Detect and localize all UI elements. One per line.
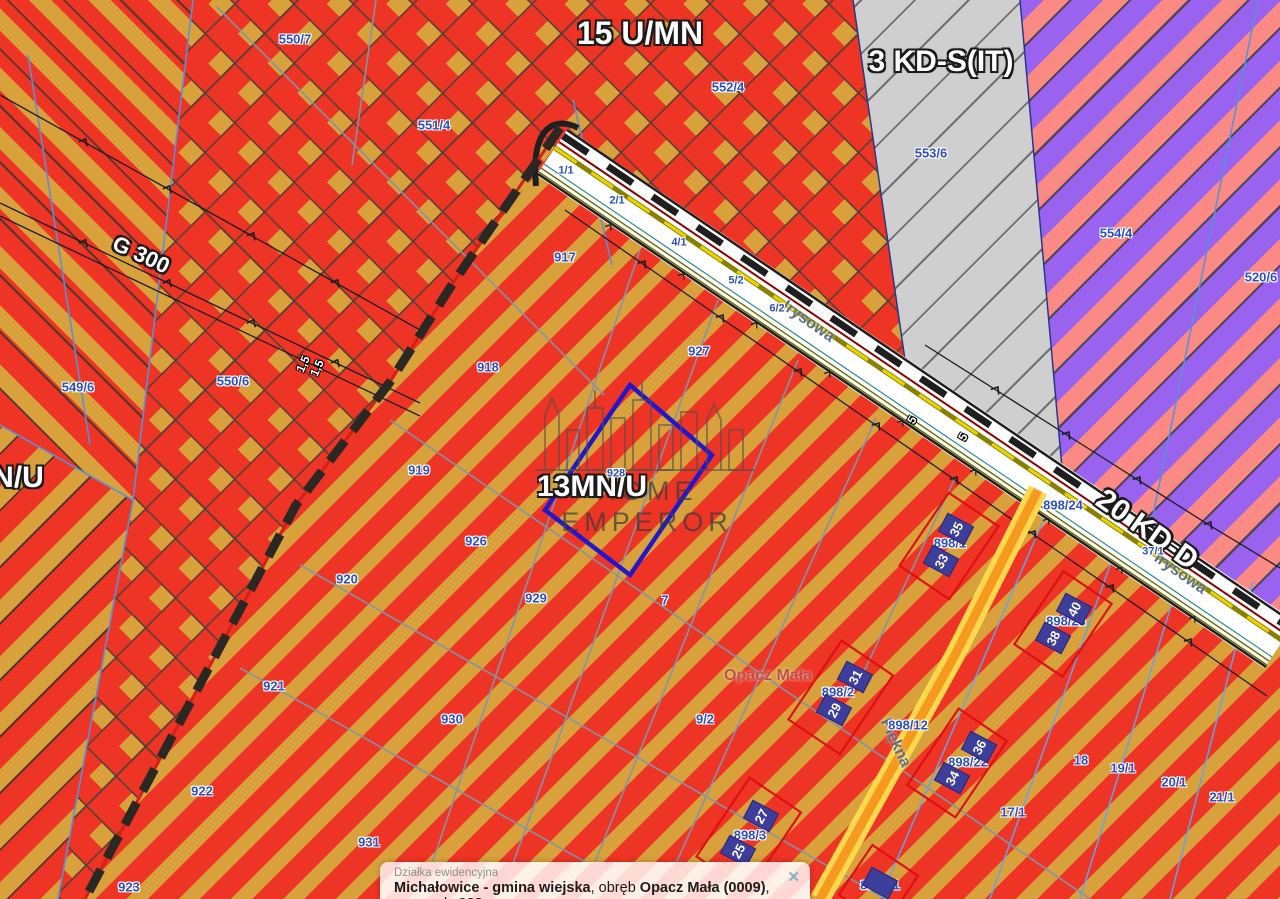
- map-canvas[interactable]: HOME EMPEROR 15 U/MN3 KD-S(IT)13MN/U20 K…: [0, 0, 1280, 899]
- house-number-box: 38: [1035, 622, 1071, 655]
- house-number-box: 33: [923, 545, 959, 578]
- parcel-info-panel: Działka ewidencyjna Michałowice - gmina …: [380, 862, 810, 899]
- info-panel-segment: , obręb: [591, 880, 640, 896]
- house-number-box: 35: [938, 513, 974, 546]
- house-number-box: 29: [816, 694, 852, 727]
- house-number-box: 40: [1056, 593, 1092, 626]
- close-icon[interactable]: ✕: [787, 868, 800, 886]
- house-number-box: 27: [743, 800, 779, 833]
- info-panel-title: Działka ewidencyjna: [394, 867, 796, 879]
- house-number-box: 34: [934, 762, 970, 795]
- house-number-boxes: 35334038312936342725: [0, 0, 1280, 899]
- house-number-box: 31: [837, 661, 873, 694]
- info-panel-segment: Opacz Mała (0009): [640, 880, 766, 896]
- info-panel-text: Michałowice - gmina wiejska, obręb Opacz…: [394, 880, 796, 899]
- house-number-box: [862, 867, 898, 899]
- house-number-box: 36: [961, 731, 997, 764]
- info-panel-segment: Michałowice - gmina wiejska: [394, 880, 591, 896]
